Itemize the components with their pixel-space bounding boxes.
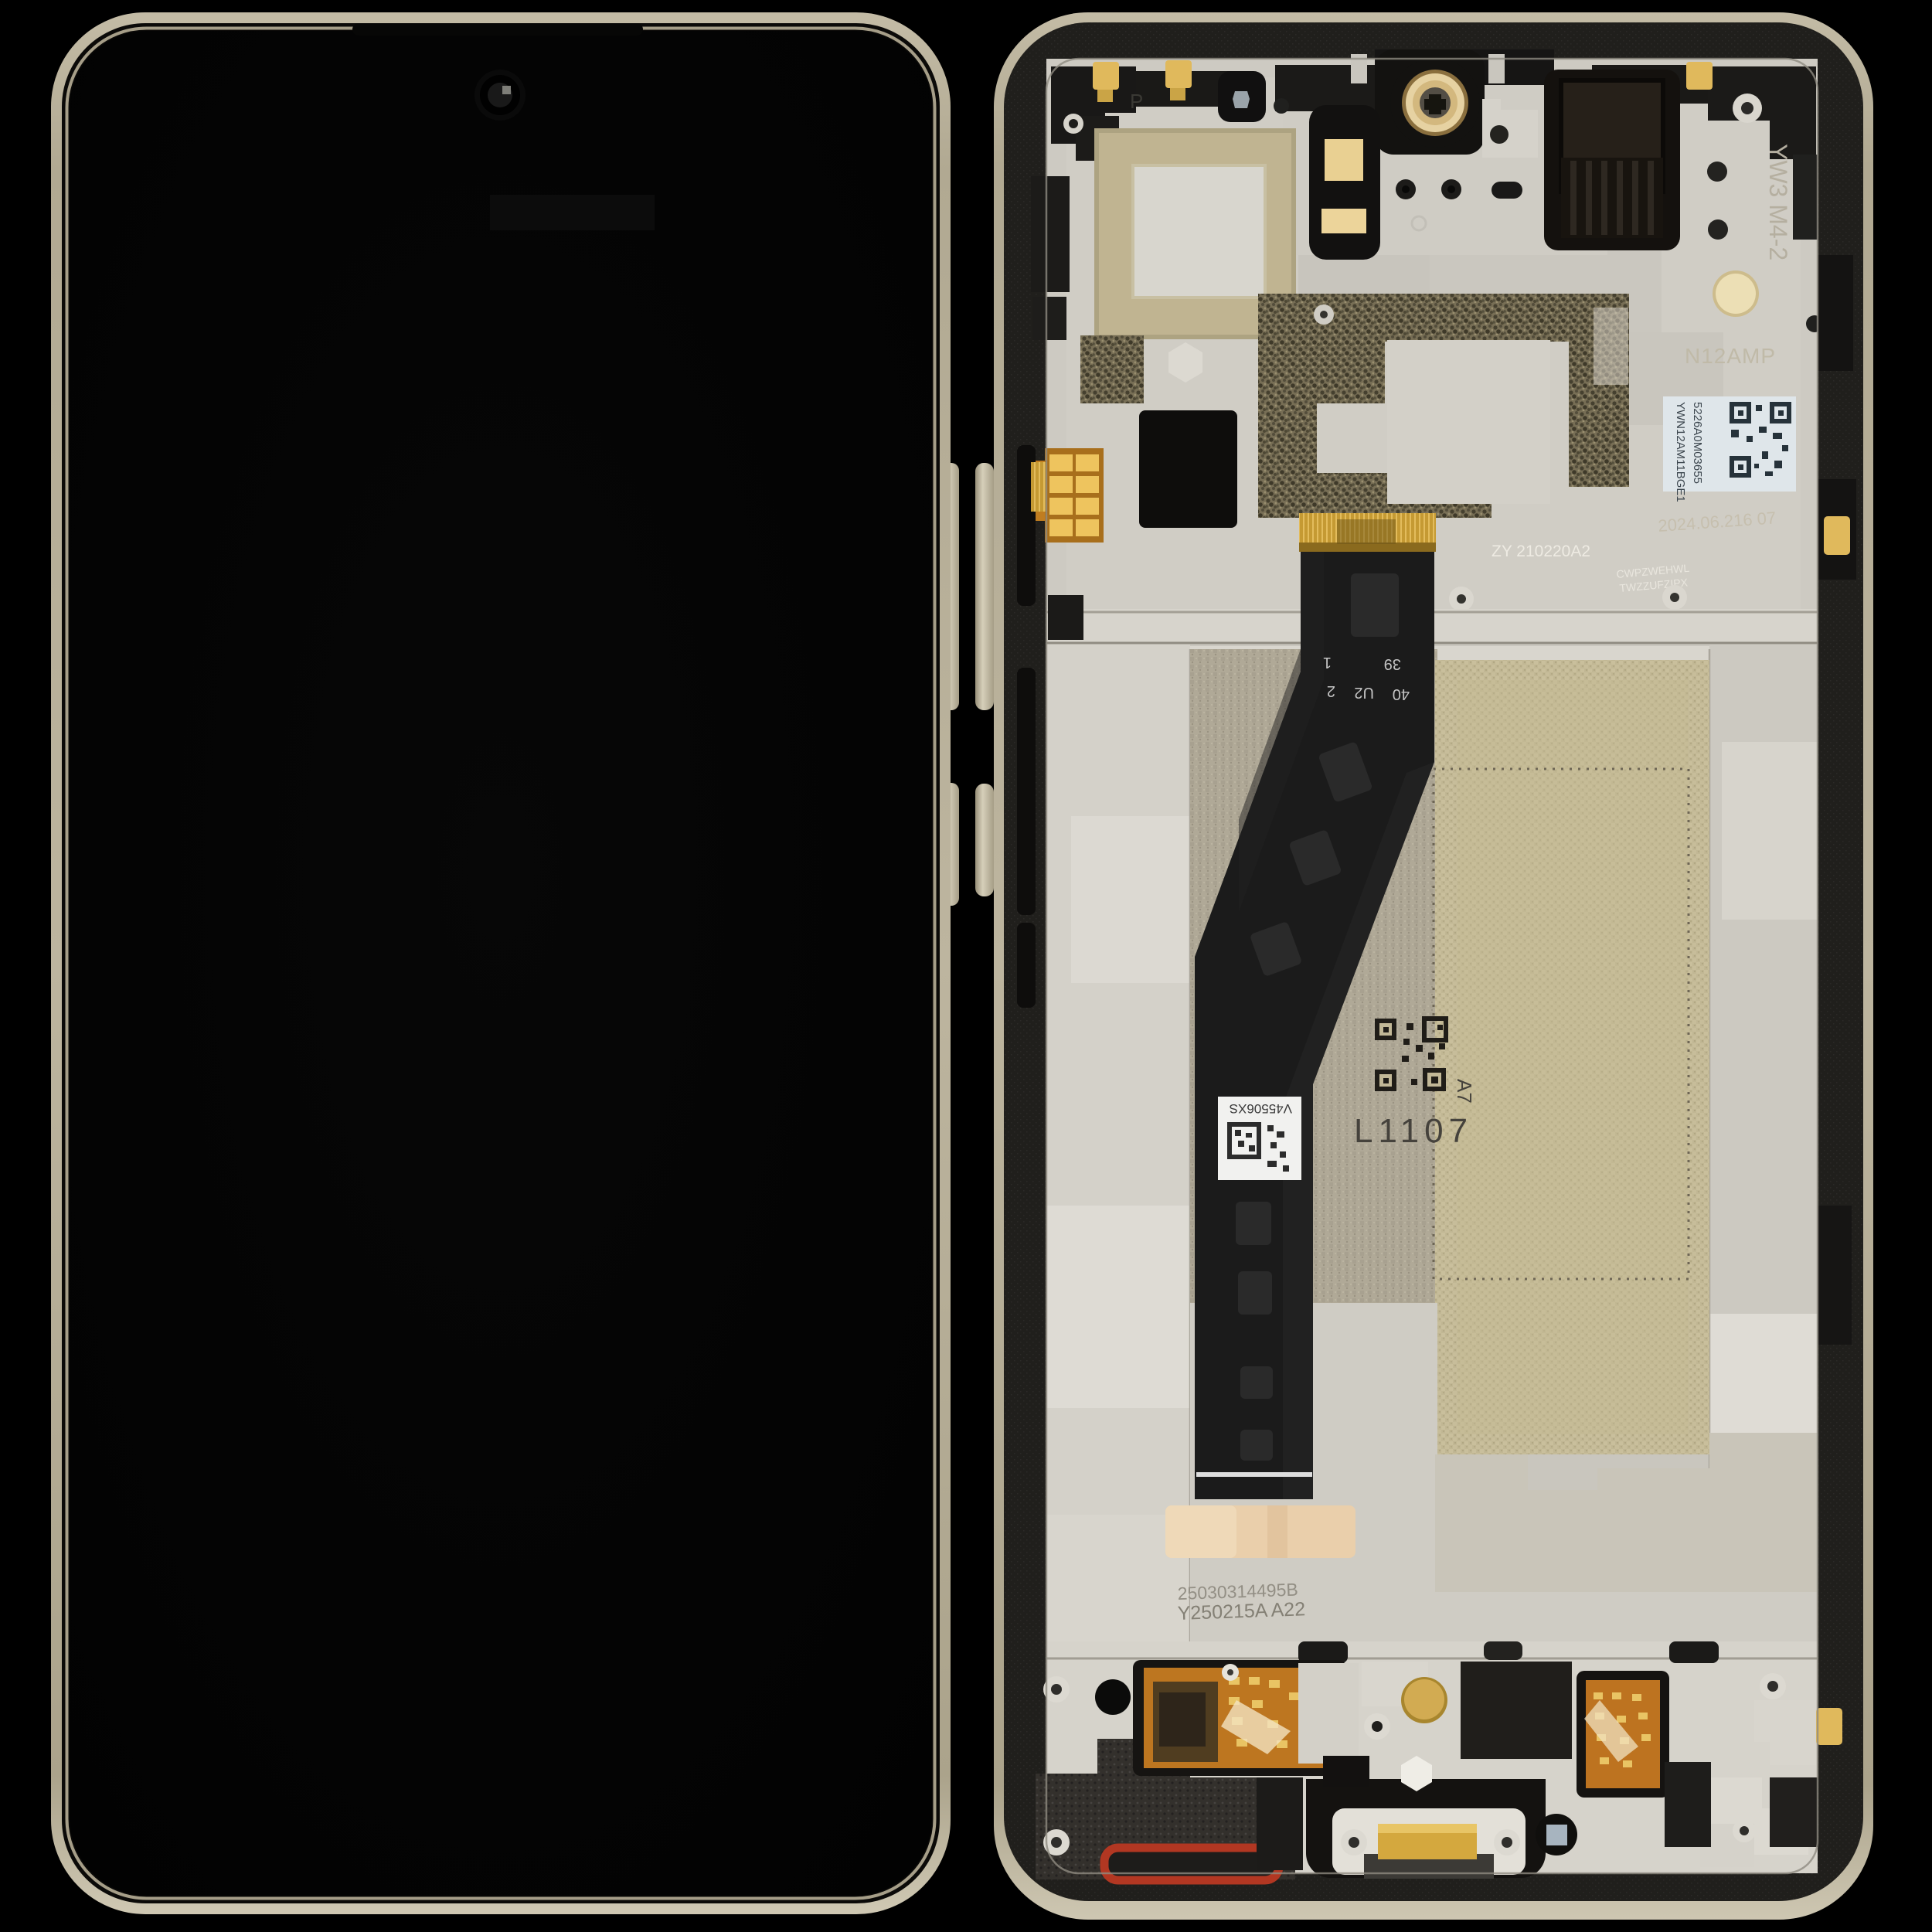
svg-text:ZY 210220A2: ZY 210220A2 (1492, 543, 1590, 560)
svg-text:V45506XS: V45506XS (1230, 1101, 1292, 1116)
svg-text:1: 1 (1323, 654, 1332, 671)
svg-text:N12AMP: N12AMP (1685, 344, 1776, 368)
svg-text:P: P (1130, 90, 1143, 113)
svg-text:39: 39 (1384, 655, 1401, 672)
svg-text:Y250215A A22: Y250215A A22 (1177, 1598, 1305, 1624)
svg-text:2: 2 (1327, 682, 1335, 699)
svg-text:U2: U2 (1354, 684, 1374, 701)
svg-text:YW3 M4-2: YW3 M4-2 (1764, 144, 1792, 260)
svg-text:YWN12AM11BGE1: YWN12AM11BGE1 (1674, 402, 1687, 502)
svg-text:5226A0M03655: 5226A0M03655 (1691, 402, 1704, 484)
svg-text:40: 40 (1393, 685, 1410, 702)
svg-text:A7: A7 (1453, 1079, 1476, 1104)
svg-text:L1107: L1107 (1354, 1112, 1473, 1150)
